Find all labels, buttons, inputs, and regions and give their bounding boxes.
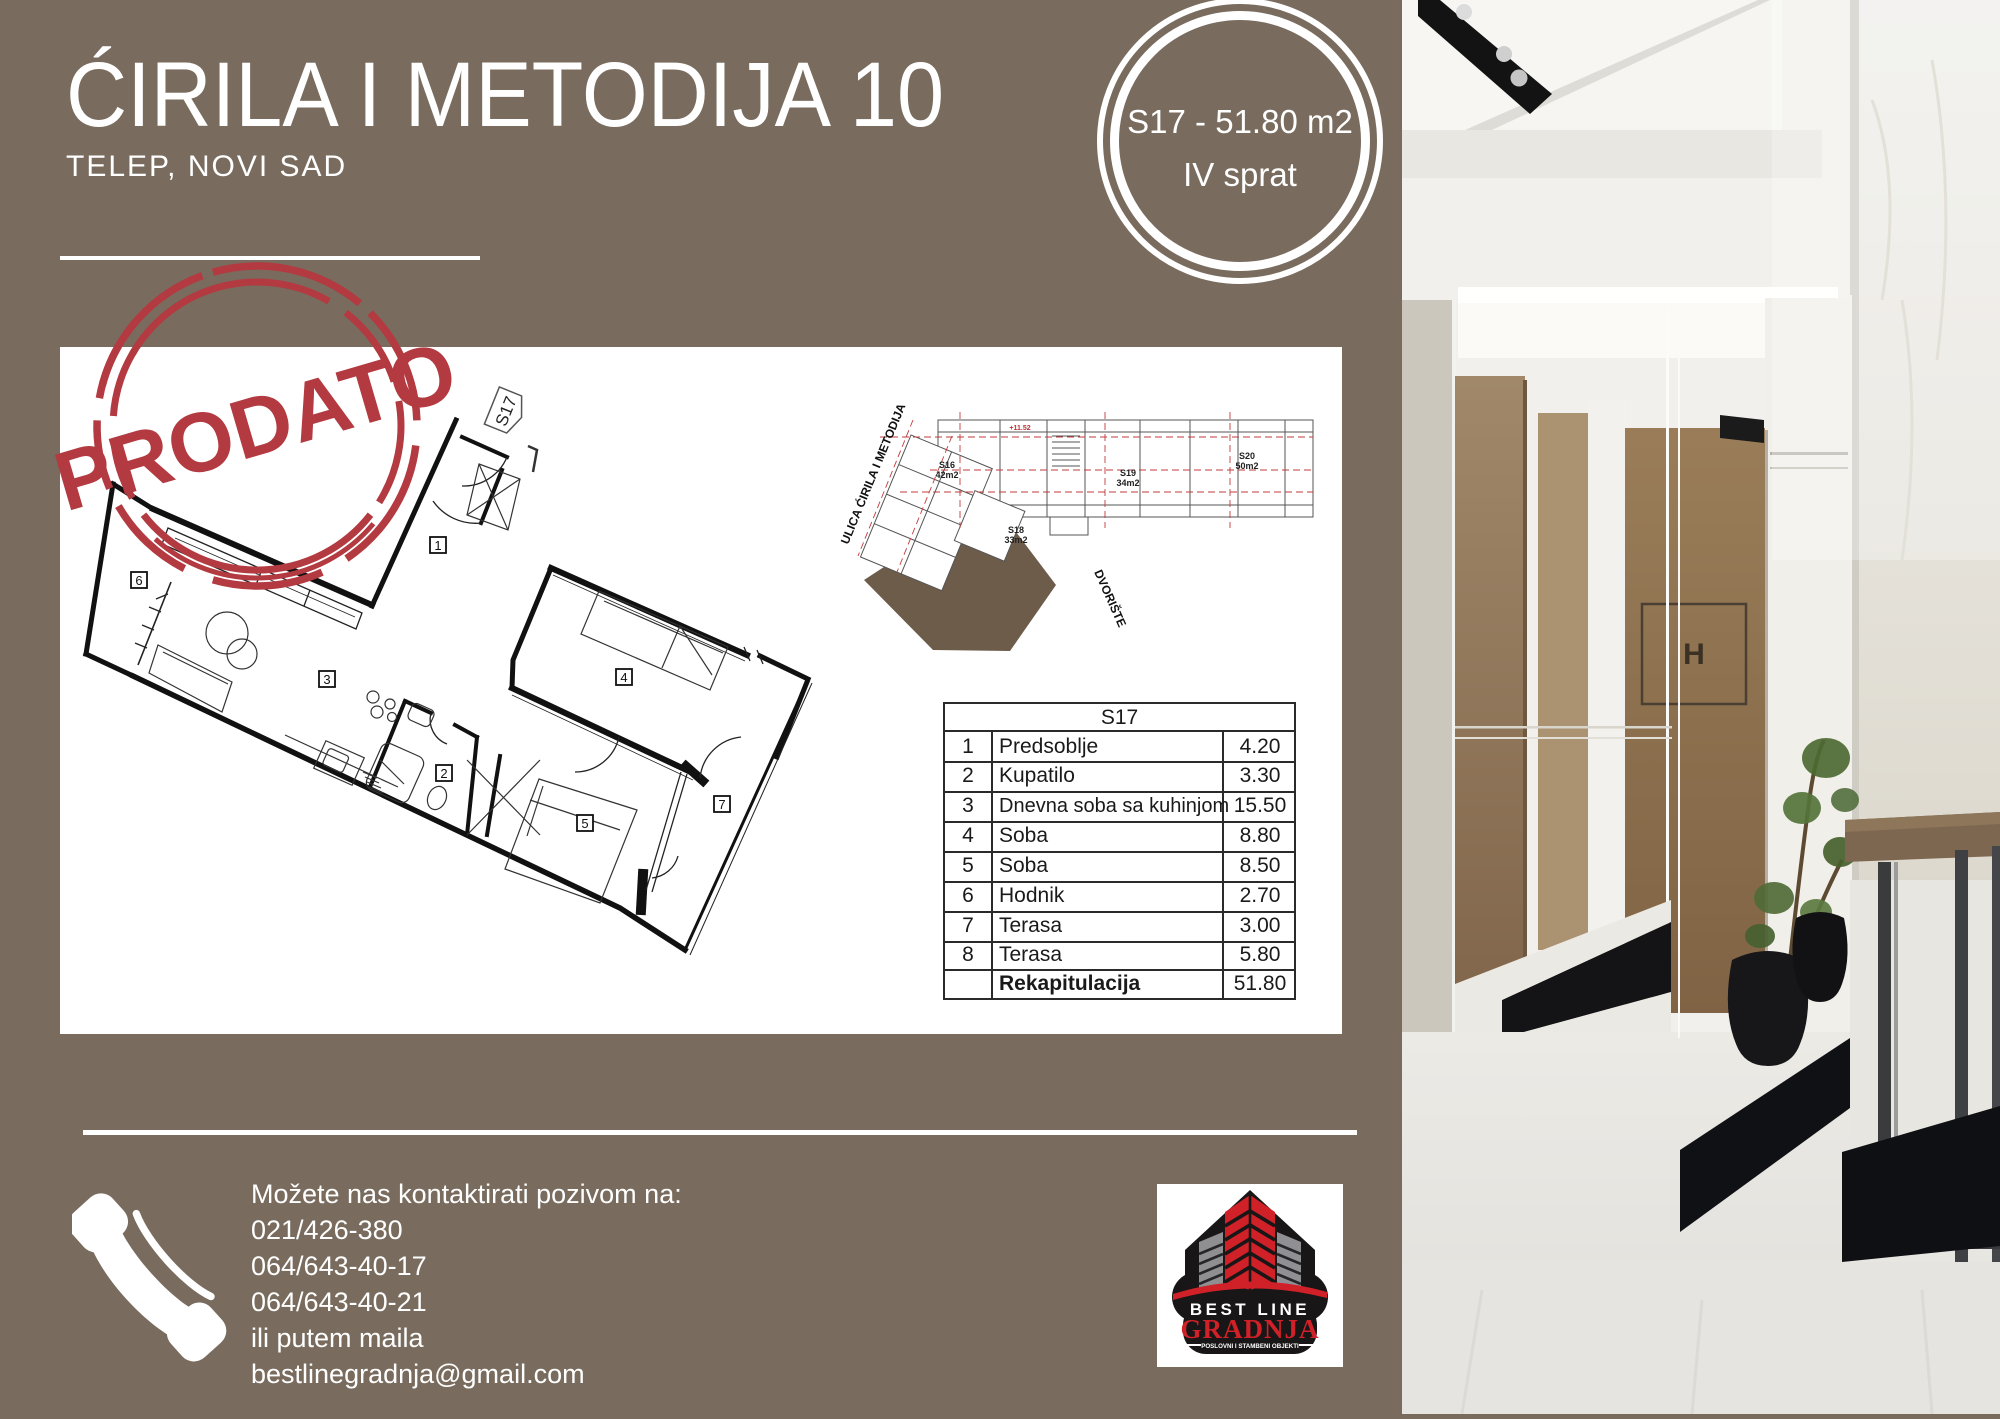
svg-text:4: 4 [620, 670, 627, 685]
svg-text:S18: S18 [1008, 525, 1024, 535]
svg-text:42m2: 42m2 [935, 470, 958, 480]
svg-text:6: 6 [135, 573, 142, 588]
svg-text:7: 7 [718, 797, 725, 812]
svg-text:S20: S20 [1239, 451, 1255, 461]
svg-text:POSLOVNI I STAMBENI OBJEKTI: POSLOVNI I STAMBENI OBJEKTI [1201, 1343, 1299, 1350]
svg-text:GRADNJA: GRADNJA [1181, 1314, 1320, 1344]
svg-text:S19: S19 [1120, 468, 1136, 478]
svg-text:34m2: 34m2 [1116, 478, 1139, 488]
svg-text:1: 1 [434, 538, 441, 553]
svg-text:2: 2 [440, 766, 447, 781]
svg-text:5: 5 [581, 816, 588, 831]
svg-text:S16: S16 [939, 460, 955, 470]
svg-text:DVORIŠTE: DVORIŠTE [1091, 567, 1130, 629]
svg-text:3: 3 [323, 672, 330, 687]
svg-text:50m2: 50m2 [1235, 461, 1258, 471]
svg-text:+11.52: +11.52 [1009, 425, 1030, 432]
svg-text:33m2: 33m2 [1004, 535, 1027, 545]
